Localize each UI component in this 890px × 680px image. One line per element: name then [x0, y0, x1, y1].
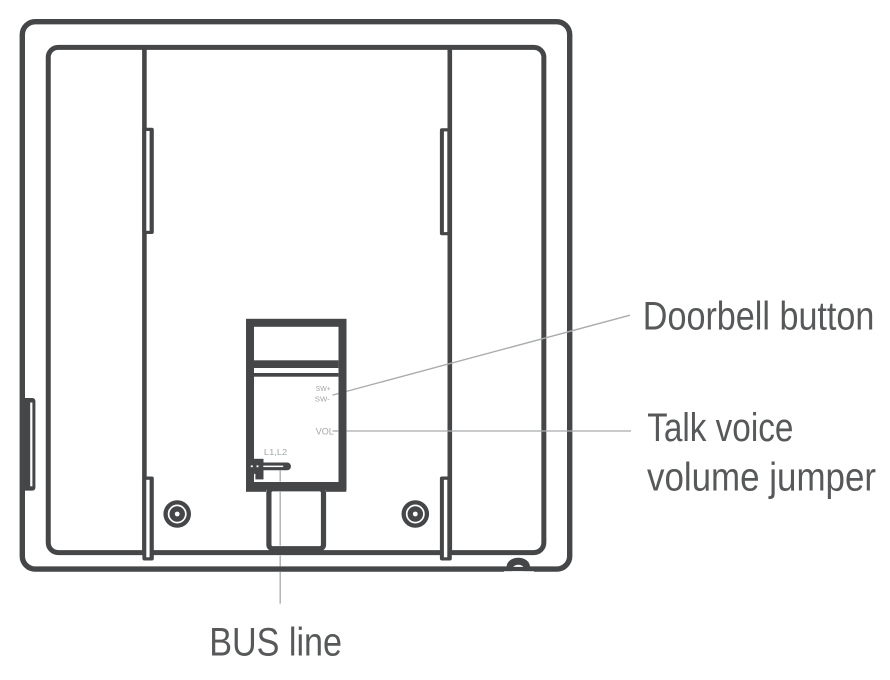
- svg-text:SW+: SW+: [316, 384, 331, 393]
- svg-text:VOL: VOL: [316, 427, 334, 437]
- svg-text:BUS line: BUS line: [209, 621, 342, 665]
- svg-text:volume jumper: volume jumper: [647, 456, 876, 500]
- svg-text:Talk voice: Talk voice: [647, 406, 793, 450]
- svg-text:L1,L2: L1,L2: [264, 448, 288, 457]
- svg-text:Doorbell button: Doorbell button: [643, 295, 875, 339]
- svg-text:SW-: SW-: [315, 395, 331, 404]
